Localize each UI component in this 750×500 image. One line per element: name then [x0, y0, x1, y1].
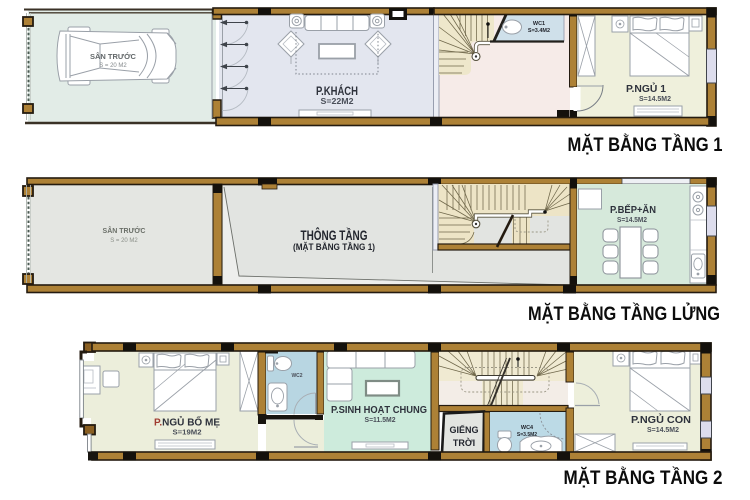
svg-text:S = 20 M2: S = 20 M2 — [99, 63, 127, 69]
svg-text:S=3.5M2: S=3.5M2 — [517, 432, 537, 438]
svg-text:S=14.5M2: S=14.5M2 — [617, 217, 647, 224]
svg-text:THÔNG TẦNG: THÔNG TẦNG — [301, 226, 368, 243]
svg-text:WC2: WC2 — [291, 373, 302, 379]
svg-text:S=14.5M2: S=14.5M2 — [639, 94, 671, 103]
svg-text:(MẶT BẰNG TẦNG 1): (MẶT BẰNG TẦNG 1) — [293, 242, 375, 253]
svg-text:S=14.5M2: S=14.5M2 — [647, 425, 679, 434]
svg-text:S = 20 M2: S = 20 M2 — [110, 238, 138, 244]
svg-text:P.NGỦ BỐ MẸ: P.NGỦ BỐ MẸ — [154, 415, 220, 429]
svg-text:MẶT BẰNG TẦNG 1: MẶT BẰNG TẦNG 1 — [568, 132, 723, 156]
svg-text:WC4: WC4 — [521, 425, 534, 431]
svg-text:SÂN TRƯỚC: SÂN TRƯỚC — [103, 226, 146, 235]
svg-text:S=11.5M2: S=11.5M2 — [365, 415, 396, 424]
svg-text:WC1: WC1 — [533, 21, 545, 27]
svg-text:S=3.4M2: S=3.4M2 — [528, 28, 550, 34]
svg-text:SÂN TRƯỚC: SÂN TRƯỚC — [90, 52, 137, 61]
svg-text:P.BẾP+ĂN: P.BẾP+ĂN — [610, 205, 656, 216]
svg-text:GIẾNG: GIẾNG — [449, 425, 478, 435]
svg-text:TRỜI: TRỜI — [453, 437, 475, 448]
svg-text:MẶT BẰNG TẦNG LỬNG: MẶT BẰNG TẦNG LỬNG — [528, 301, 720, 325]
svg-text:S=19M2: S=19M2 — [173, 428, 202, 437]
svg-text:MẶT BẰNG TẦNG 2: MẶT BẰNG TẦNG 2 — [564, 465, 723, 489]
svg-text:S=22M2: S=22M2 — [321, 97, 355, 106]
